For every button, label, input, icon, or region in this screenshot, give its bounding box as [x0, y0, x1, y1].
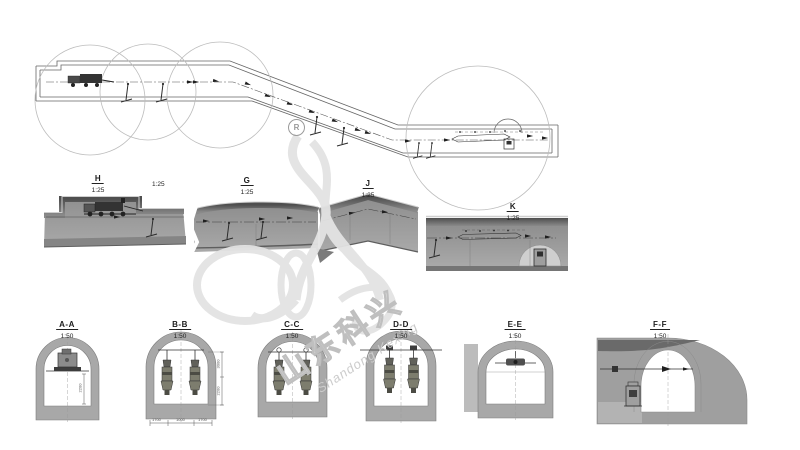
section-label-j: J 1:25	[362, 173, 375, 200]
section-letter-j: J	[363, 179, 374, 189]
cross-label-ff: F-F 1:50	[650, 314, 670, 341]
section-label-h: H 1:25	[92, 168, 105, 195]
cross-a-dim	[82, 374, 86, 404]
drawing-sheet: R 山东科兴 Shandong Kexing H 1:25 1:25 G 1:2…	[0, 0, 800, 450]
cross-section-a	[36, 336, 99, 422]
section-profile-h	[44, 197, 186, 248]
section-letter-g: G	[241, 176, 254, 186]
cross-scale-aa: 1:50	[56, 333, 78, 341]
cross-section-e	[464, 334, 553, 420]
cross-letter-ff: F-F	[650, 320, 670, 330]
cross-letter-aa: A-A	[56, 320, 78, 330]
cross-label-dd: D-D 1:50	[390, 314, 412, 341]
section-profile-k	[426, 217, 568, 272]
cross-label-cc: C-C 1:50	[281, 314, 303, 341]
cross-a-equipment	[54, 349, 81, 371]
section-scale-h: 1:25	[92, 187, 105, 195]
cross-letter-dd: D-D	[390, 320, 412, 330]
cross-letter-ee: E-E	[505, 320, 526, 330]
dim-bb-bottom-mid: 1000	[176, 418, 185, 422]
registered-trademark-icon: R	[288, 119, 305, 136]
section-label-g: G 1:25	[241, 170, 254, 197]
cross-letter-bb: B-B	[169, 320, 191, 330]
cross-section-f	[597, 334, 747, 426]
cross-letter-cc: C-C	[281, 320, 303, 330]
cross-scale-cc: 1:50	[281, 333, 303, 341]
dim-bb-upper: 3000	[216, 360, 220, 369]
cross-f-cabinet	[624, 382, 642, 406]
dim-aa-height: 2200	[78, 384, 82, 393]
cross-scale-ee: 1:50	[505, 333, 526, 341]
cross-section-b	[146, 330, 224, 426]
cross-label-aa: A-A 1:50	[56, 314, 78, 341]
cross-scale-ff: 1:50	[650, 333, 670, 341]
section-scale-j: 1:25	[362, 192, 375, 200]
dim-bb-lower: 2200	[216, 387, 220, 396]
section-extra-scale-h: 1:25	[152, 181, 165, 188]
section-k-equipment-box	[534, 249, 546, 266]
cross-label-ee: E-E 1:50	[505, 314, 526, 341]
section-label-k: K 1:25	[507, 196, 520, 223]
cross-scale-dd: 1:50	[390, 333, 412, 341]
section-letter-h: H	[92, 174, 104, 184]
drawing-canvas	[0, 0, 800, 450]
dim-bb-bottom-left: 1700	[152, 418, 161, 422]
section-scale-g: 1:25	[241, 189, 254, 197]
section-letter-k: K	[507, 202, 519, 212]
dim-bb-bottom-right: 1700	[198, 418, 207, 422]
cross-label-bb: B-B 1:50	[169, 314, 191, 341]
cross-scale-bb: 1:50	[169, 333, 191, 341]
section-scale-k: 1:25	[507, 215, 520, 223]
plan-drill-rig	[68, 74, 114, 87]
